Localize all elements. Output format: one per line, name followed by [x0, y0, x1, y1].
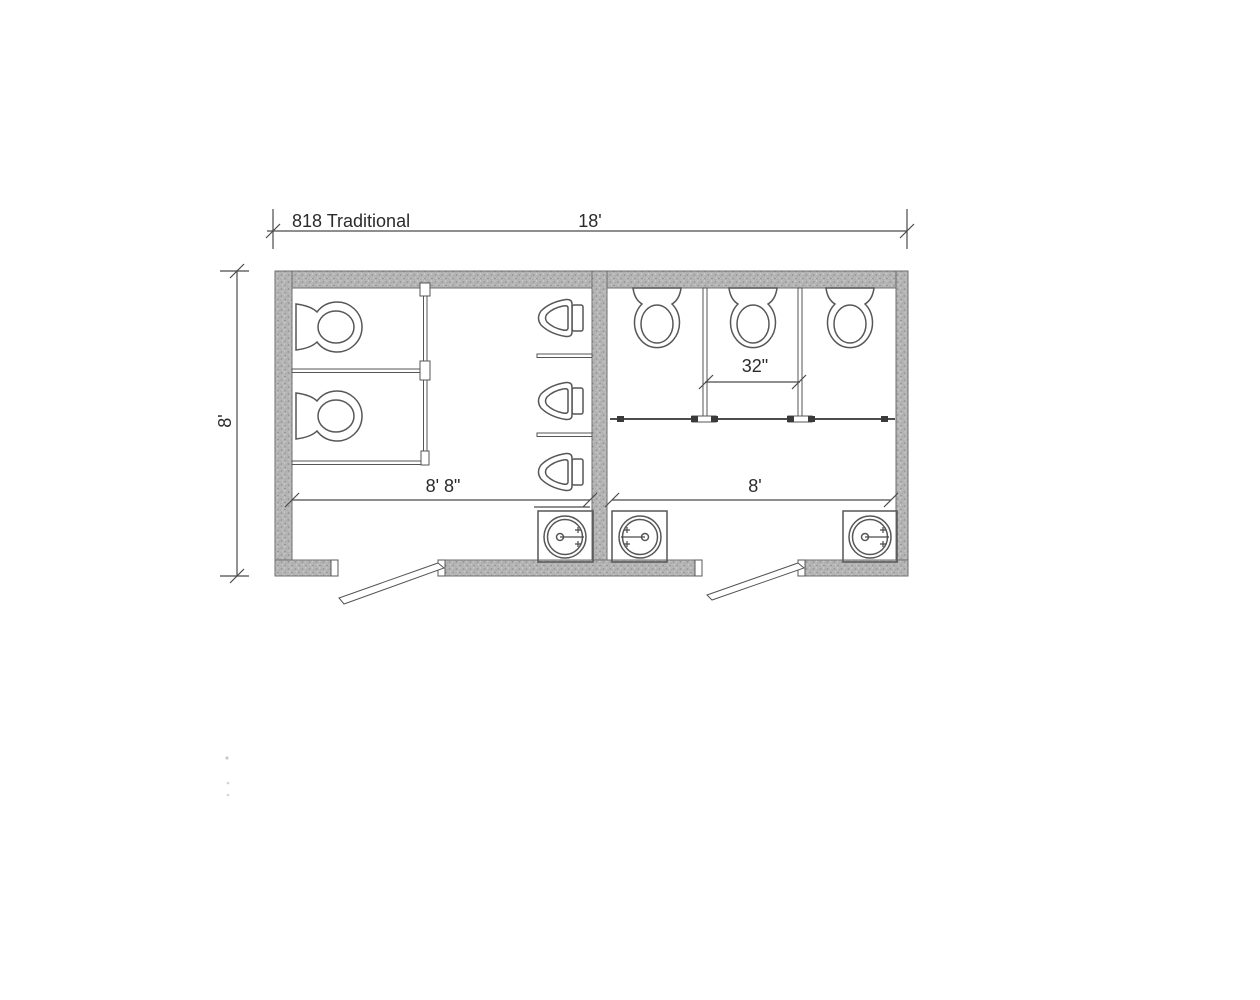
stall-partition: [292, 461, 423, 465]
plan-title: 818 Traditional: [292, 211, 410, 231]
stall-door-hinge: [617, 416, 624, 422]
right-wall: [896, 271, 908, 576]
floor-plan-drawing: 18' 818 Traditional 8': [0, 0, 1260, 1000]
urinal-screen: [537, 354, 592, 358]
urinal: [539, 382, 584, 419]
toilet: [826, 288, 874, 348]
dimension-overall-depth: 8': [215, 264, 249, 583]
stall-front-line: [610, 416, 895, 422]
floor-plan-page: 18' 818 Traditional 8': [0, 0, 1260, 1000]
stall-partition: [292, 369, 423, 373]
dimension-stall-width: 32": [699, 356, 806, 389]
stall-door-hinge: [787, 416, 794, 422]
urinal-flush: [572, 459, 583, 485]
scan-dot: [225, 756, 228, 759]
left-wall: [275, 271, 292, 576]
toilet-outline: [826, 288, 874, 348]
urinal-body: [539, 299, 573, 336]
stall-door-hinge: [808, 416, 815, 422]
dimension-right-room-width: 8': [605, 476, 898, 507]
stall-width-label: 32": [742, 356, 768, 376]
sink-vanity: [612, 511, 667, 562]
stall-partition: [703, 288, 707, 418]
right-room-entry-door: [707, 563, 804, 600]
right-room-width-label: 8': [748, 476, 761, 496]
right-room: 32": [605, 288, 898, 562]
scan-dot: [227, 782, 230, 785]
sink-vanity: [534, 507, 593, 562]
toilet-outline: [296, 302, 362, 352]
urinal-flush: [572, 388, 583, 414]
stall-door-hinge: [420, 361, 430, 380]
toilet-outline: [729, 288, 777, 348]
urinal-body: [539, 453, 573, 490]
urinal: [539, 299, 584, 336]
left-room: 8' 8": [285, 283, 597, 562]
stall-door-hinge: [881, 416, 888, 422]
bottom-wall-segment: [275, 560, 331, 576]
urinal-flush: [572, 305, 583, 331]
door-leaf: [707, 563, 804, 600]
urinal: [539, 453, 584, 490]
scan-dot: [227, 794, 230, 797]
stall-door-hinge: [420, 283, 430, 296]
overall-depth-label: 8': [215, 414, 235, 427]
urinal-body: [539, 382, 573, 419]
sink-vanity: [843, 511, 897, 562]
door-jamb: [331, 560, 338, 576]
stall-door-hinge: [421, 451, 429, 465]
stall-door-hinge: [711, 416, 718, 422]
toilet: [729, 288, 777, 348]
walls: [275, 271, 908, 576]
toilet: [296, 391, 362, 441]
urinal-screen: [537, 433, 592, 437]
toilet-outline: [633, 288, 681, 348]
scan-artifact-dots: [225, 756, 229, 796]
center-dividing-wall: [592, 271, 607, 576]
door-leaf: [339, 563, 444, 604]
toilet: [633, 288, 681, 348]
stall-partition: [798, 288, 802, 418]
door-jamb: [695, 560, 702, 576]
left-room-entry-door: [339, 563, 444, 604]
left-room-width-label: 8' 8": [426, 476, 461, 496]
stall-door-hinge: [691, 416, 698, 422]
toilet-outline: [296, 391, 362, 441]
toilet: [296, 302, 362, 352]
overall-width-label: 18': [578, 211, 601, 231]
